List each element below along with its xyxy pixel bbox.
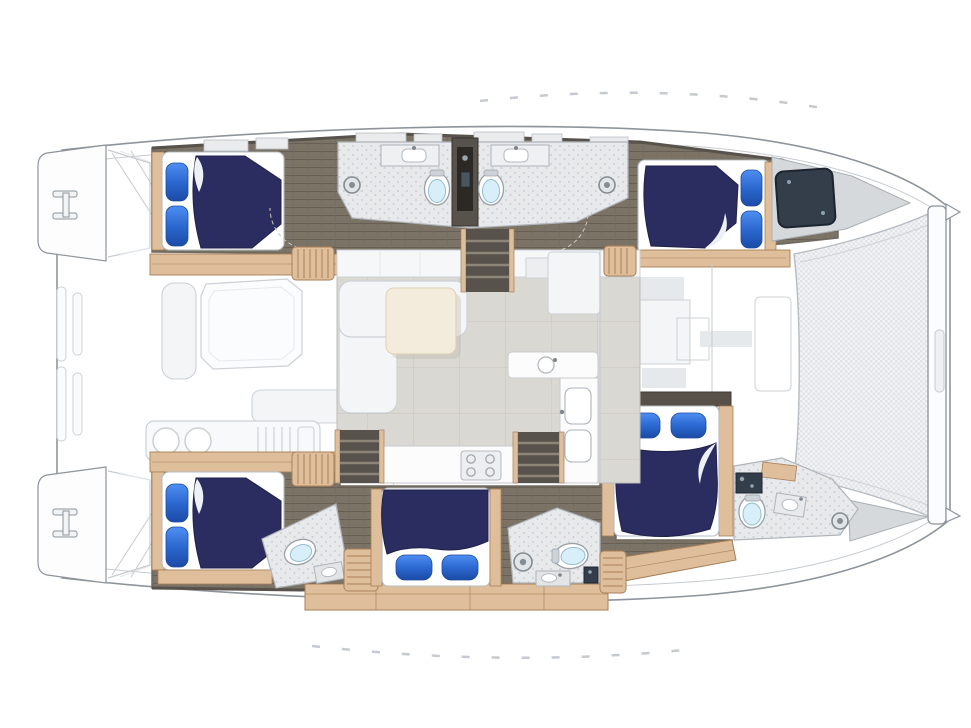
galley-sink-2 [565, 430, 591, 462]
vanity-basin-port-aft [402, 149, 426, 162]
vanity-faucet-port-fwd [514, 146, 518, 150]
cabin-mid-stb-frame-left [371, 489, 382, 586]
floorplan-page [0, 0, 971, 728]
transom-platform-port [38, 145, 106, 261]
cabin-fwd-port-pillow-1 [741, 170, 762, 206]
cabin-aft-stb-pillow-2 [166, 527, 188, 567]
head-fwd-stb-knob-1 [740, 477, 744, 481]
bow-hatch-port [775, 168, 836, 228]
shower-drain-fwd-stb-dot [837, 518, 843, 524]
cabin-aft-stb-pillow-1 [166, 484, 188, 522]
cabin-aft-stb-footshelf [158, 570, 272, 584]
transom-platform-stb [38, 467, 106, 583]
davit-rail-stb-1 [57, 367, 66, 441]
shower-column-head [462, 155, 468, 161]
davit-rail-port-1 [57, 287, 66, 361]
bow-hatch-screw-1 [787, 180, 791, 184]
cabin-mid-stb-duvet [382, 490, 488, 554]
trampoline-net [794, 214, 938, 516]
galley-sink-1 [565, 388, 591, 424]
vanity-faucet-port-aft [412, 146, 416, 150]
port-deck-locker-2 [256, 138, 288, 149]
cabin-aft-port-pillow-1 [166, 163, 188, 201]
shower-drain-port-fwd-dot [604, 182, 610, 188]
nav-cabinet-shelf [526, 258, 548, 278]
stairs-stb-aft-rail-left [335, 430, 340, 483]
foredeck-locker-2 [640, 300, 690, 364]
stairs-stb-aft-rail-right [379, 430, 384, 483]
cockpit-bench-aft [252, 390, 350, 423]
stern-cleat-port-stem [63, 193, 69, 217]
toilet-port-aft-hinge [430, 170, 444, 176]
toilet-port-fwd-lid [483, 180, 500, 203]
stern-cleat-stb-stem [63, 511, 69, 535]
cabin-mid-stb-frame-right [490, 489, 501, 586]
head-mid-stb-fixture-knob [588, 570, 592, 574]
cabin-fwd-port-shelf [630, 250, 790, 267]
davit-rail-stb-2 [73, 373, 82, 435]
toilet-fwd-stb-lid [743, 503, 761, 525]
cabin-mid-stb-pillow-1 [396, 555, 432, 580]
catamaran-floorplan-diagram [0, 0, 971, 728]
cabin-fwd-stb-frame-right [719, 406, 733, 536]
shower-column-panel [461, 172, 470, 187]
galley-island-sink [538, 357, 554, 373]
grill-burner-right [185, 428, 211, 454]
foredeck-locker-5 [642, 368, 686, 388]
grill-burner-left [153, 428, 179, 454]
head-fwd-stb-faucet-panel [736, 473, 762, 493]
head-fwd-stb-knob-2 [750, 484, 754, 488]
bow-crossbeam-fitting [935, 330, 944, 392]
davit-rail-port-2 [73, 293, 82, 355]
toilet-fwd-stb-hinge [745, 495, 760, 501]
port-deck-locker-1 [204, 140, 248, 151]
stove [461, 451, 501, 480]
galley-faucet [560, 410, 564, 414]
head-mid-stb-fixture [584, 567, 598, 583]
cabin-fwd-stb-pillow-2 [671, 413, 706, 438]
nav-cabinet [548, 252, 600, 314]
toilet-port-aft-lid [429, 180, 446, 203]
galley-island-faucet [553, 358, 557, 362]
stairs-port-well [466, 229, 509, 292]
shower-drain-port-aft-dot [349, 182, 355, 188]
vanity-faucet-mid-stb [558, 573, 562, 577]
stairs-stb-fwd-rail-right [559, 432, 564, 483]
bow-hatch-screw-2 [821, 211, 825, 215]
stairs-stb-fwd-rail-left [513, 432, 518, 483]
cabin-mid-stb-pillow-2 [442, 555, 478, 580]
cabin-fwd-port-pillow-2 [741, 211, 762, 248]
stairs-port-rail-left [461, 229, 466, 292]
salon-table [386, 288, 456, 354]
cockpit-bench-port [162, 283, 196, 379]
toilet-port-fwd-hinge [484, 170, 498, 176]
stairs-port-rail-right [509, 229, 514, 292]
foredeck-hatch-bar [700, 331, 752, 347]
vanity-basin-mid-stb [542, 574, 557, 582]
cabin-aft-port-pillow-2 [166, 206, 188, 246]
vanity-faucet-fwd-stb [799, 497, 803, 501]
toilet-mid-stb-hinge [552, 549, 559, 563]
vanity-basin-port-fwd [504, 149, 528, 162]
shower-drain-mid-stb-dot [520, 559, 526, 565]
